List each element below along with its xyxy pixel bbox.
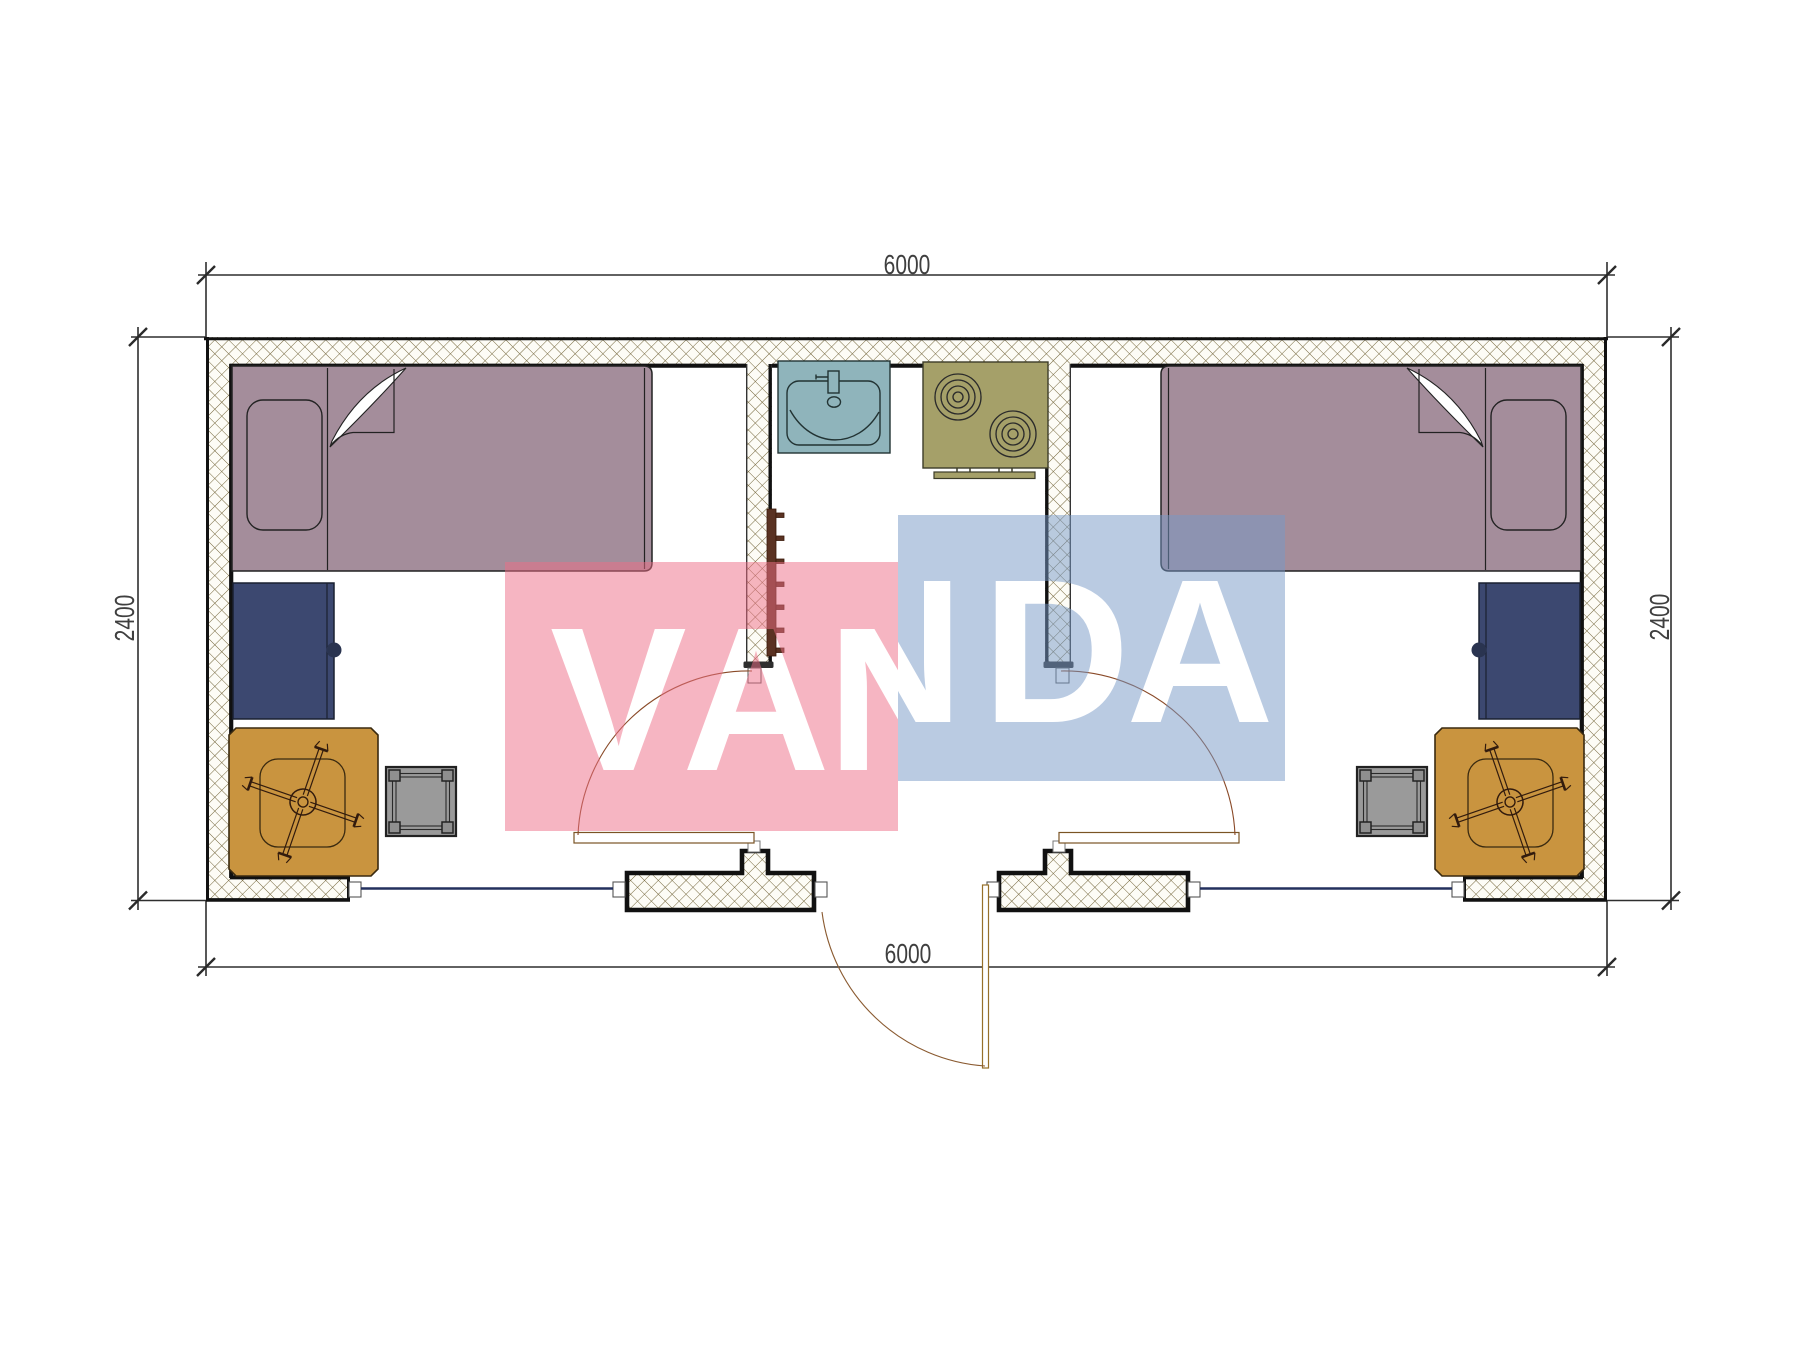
svg-text:2400: 2400 bbox=[1645, 594, 1676, 641]
svg-text:6000: 6000 bbox=[884, 250, 931, 281]
svg-text:2400: 2400 bbox=[110, 595, 141, 642]
svg-text:6000: 6000 bbox=[885, 939, 932, 970]
